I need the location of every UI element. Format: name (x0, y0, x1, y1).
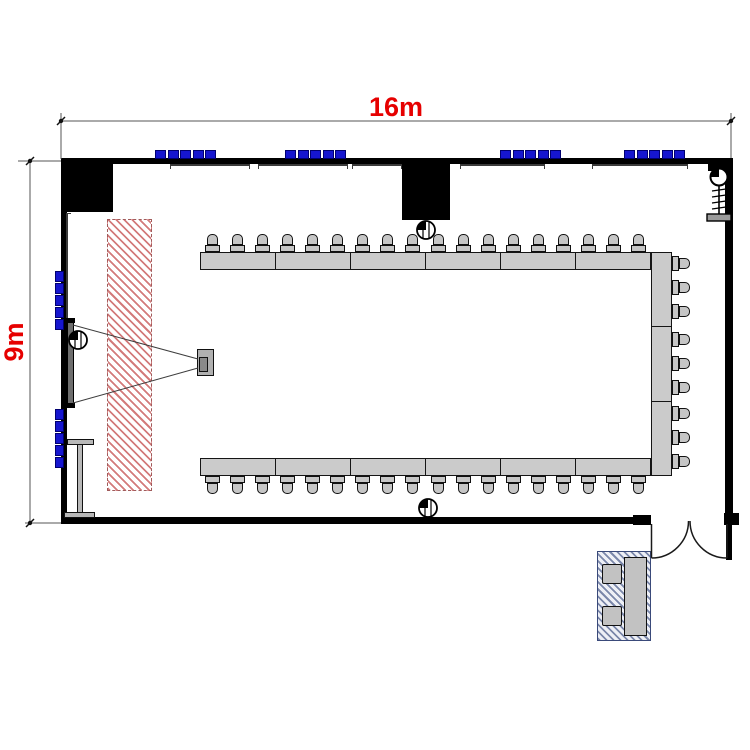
chair (672, 380, 690, 395)
light-cell (55, 409, 64, 420)
chair-back (483, 234, 494, 245)
chair-back (207, 234, 218, 245)
chair-back (357, 483, 368, 494)
light-cell (205, 150, 216, 159)
chair (556, 476, 571, 494)
chair (205, 476, 220, 494)
chair (405, 234, 420, 252)
chair-back (257, 483, 268, 494)
chair-seat (631, 476, 646, 483)
chair-seat (280, 476, 295, 483)
light-cell (662, 150, 673, 159)
table-segment (501, 459, 576, 475)
light-cell (55, 445, 64, 456)
light-cell (55, 283, 64, 294)
chair-back (679, 382, 690, 393)
light-cell (624, 150, 635, 159)
chair-back (583, 234, 594, 245)
chair-seat (672, 356, 679, 371)
light-cell (525, 150, 536, 159)
chair (481, 234, 496, 252)
chair-seat (405, 476, 420, 483)
table-column-right (651, 252, 672, 476)
light-cell (335, 150, 346, 159)
table-row-top (200, 252, 651, 270)
table-segment (201, 459, 276, 475)
chair-seat (506, 245, 521, 252)
wall-rail-top (258, 164, 348, 169)
chair-seat (431, 245, 446, 252)
chair-back (533, 234, 544, 245)
light-cell (55, 421, 64, 432)
chair-back (357, 234, 368, 245)
table-segment (576, 459, 650, 475)
chair-back (332, 483, 343, 494)
projection-screen-cap-top (65, 318, 75, 323)
reception-chair-1 (602, 564, 622, 584)
light-cell (310, 150, 321, 159)
table-segment (426, 253, 501, 269)
chair-back (332, 234, 343, 245)
chair-seat (355, 476, 370, 483)
chair (355, 476, 370, 494)
light-cell (649, 150, 660, 159)
table-segment (426, 459, 501, 475)
ceiling-speaker-bottom-icon (419, 499, 437, 517)
chair (380, 234, 395, 252)
chair-back (679, 432, 690, 443)
chair-seat (255, 476, 270, 483)
chair-seat (556, 245, 571, 252)
wall-rail-left (66, 213, 71, 321)
chair (672, 332, 690, 347)
chair-seat (255, 245, 270, 252)
light-cell (285, 150, 296, 159)
wall-rail-top (460, 164, 545, 169)
corner-block-top-right (708, 158, 733, 171)
chair-back (282, 483, 293, 494)
light-strip-left (55, 271, 64, 330)
light-cell (637, 150, 648, 159)
chair-back (307, 234, 318, 245)
chair-seat (230, 245, 245, 252)
chair-seat (672, 406, 679, 421)
chair (672, 256, 690, 271)
chair (672, 356, 690, 371)
table-segment (276, 459, 351, 475)
chair (672, 304, 690, 319)
chair-seat (631, 245, 646, 252)
chair (330, 476, 345, 494)
chair-seat (672, 454, 679, 469)
chair-seat (606, 476, 621, 483)
chair-seat (672, 256, 679, 271)
chair-back (508, 483, 519, 494)
chair (531, 234, 546, 252)
chair (305, 476, 320, 494)
chair (280, 476, 295, 494)
chair (481, 476, 496, 494)
table-row-bottom (200, 458, 651, 476)
chair (606, 234, 621, 252)
chair (672, 280, 690, 295)
screen-clearance-zone (107, 219, 152, 491)
chair-back (483, 483, 494, 494)
light-cell (55, 307, 64, 318)
light-cell (55, 271, 64, 282)
chair-seat (305, 476, 320, 483)
chair (581, 234, 596, 252)
chair (581, 476, 596, 494)
table-segment (351, 459, 426, 475)
chair-back (533, 483, 544, 494)
table-segment (501, 253, 576, 269)
chair (255, 476, 270, 494)
height-dimension-label: 9m (0, 312, 28, 372)
chair (280, 234, 295, 252)
chair (380, 476, 395, 494)
chair-seat (355, 245, 370, 252)
chair (506, 476, 521, 494)
chair (205, 234, 220, 252)
light-cell (55, 457, 64, 468)
light-cell (193, 150, 204, 159)
pillar-top-left (62, 162, 113, 212)
chair-seat (405, 245, 420, 252)
chair-seat (672, 304, 679, 319)
chair-seat (481, 476, 496, 483)
chair (506, 234, 521, 252)
chair (606, 476, 621, 494)
chair-seat (380, 476, 395, 483)
floor-plan: 16m 9m (0, 0, 750, 750)
chair-seat (581, 245, 596, 252)
whiteboard-stem (77, 444, 83, 513)
chair-back (407, 234, 418, 245)
whiteboard-bottom-bar (64, 512, 95, 518)
chair (456, 476, 471, 494)
chair (672, 406, 690, 421)
light-cell (55, 319, 64, 330)
light-cell (538, 150, 549, 159)
width-dimension-label: 16m (340, 93, 452, 121)
reception-chair-2 (602, 606, 622, 626)
chair-seat (456, 476, 471, 483)
chair-back (679, 408, 690, 419)
light-cell (168, 150, 179, 159)
chair-back (307, 483, 318, 494)
chair-back (433, 234, 444, 245)
chair (672, 430, 690, 445)
chair-back (433, 483, 444, 494)
chair-seat (506, 476, 521, 483)
chair-back (382, 234, 393, 245)
chair-seat (531, 476, 546, 483)
chair-back (633, 234, 644, 245)
chair-back (608, 483, 619, 494)
chair-back (508, 234, 519, 245)
light-strip-top (155, 150, 216, 159)
chair-seat (581, 476, 596, 483)
chair (456, 234, 471, 252)
chair-seat (305, 245, 320, 252)
chair (556, 234, 571, 252)
double-door (652, 521, 728, 558)
light-strip-top (624, 150, 685, 159)
chair-back (558, 483, 569, 494)
light-cell (55, 295, 64, 306)
light-cell (500, 150, 511, 159)
chair-back (232, 234, 243, 245)
table-segment (576, 253, 650, 269)
chair-back (679, 282, 690, 293)
table-segment (652, 327, 671, 401)
wall-rail-top (352, 164, 402, 169)
chair-seat (431, 476, 446, 483)
chair-back (679, 334, 690, 345)
chair (631, 234, 646, 252)
chair-seat (456, 245, 471, 252)
chair-seat (205, 476, 220, 483)
chair (672, 454, 690, 469)
chair (405, 476, 420, 494)
reception-desk (624, 557, 647, 636)
chair (431, 234, 446, 252)
table-segment (201, 253, 276, 269)
chair-back (207, 483, 218, 494)
chair-back (407, 483, 418, 494)
light-cell (155, 150, 166, 159)
projector-lens (199, 357, 208, 372)
chair-seat (230, 476, 245, 483)
chair-seat (672, 280, 679, 295)
chair (230, 476, 245, 494)
light-cell (298, 150, 309, 159)
wall-right (725, 158, 733, 515)
chair-seat (672, 380, 679, 395)
wall-rail-top (170, 164, 250, 169)
wall-bottom (61, 517, 651, 524)
chair (531, 476, 546, 494)
light-strip-top (285, 150, 346, 159)
chair-seat (481, 245, 496, 252)
table-segment (276, 253, 351, 269)
chair-back (232, 483, 243, 494)
chair-back (633, 483, 644, 494)
chair-back (282, 234, 293, 245)
light-strip-top (500, 150, 561, 159)
door-jamb-right (724, 513, 739, 525)
chair (255, 234, 270, 252)
chair (355, 234, 370, 252)
chair-back (679, 306, 690, 317)
table-segment (652, 402, 671, 475)
chair-seat (672, 430, 679, 445)
chair-seat (280, 245, 295, 252)
chair-back (558, 234, 569, 245)
door-jamb-left (633, 515, 651, 525)
chair-back (257, 234, 268, 245)
projection-screen-cap-bottom (65, 403, 75, 408)
chair (305, 234, 320, 252)
chair-seat (531, 245, 546, 252)
light-cell (323, 150, 334, 159)
table-segment (652, 253, 671, 327)
projection-screen (67, 321, 74, 407)
chair (230, 234, 245, 252)
chair-back (679, 456, 690, 467)
chair (330, 234, 345, 252)
pillar-top-center (402, 162, 450, 220)
light-cell (674, 150, 685, 159)
light-cell (180, 150, 191, 159)
chair-back (583, 483, 594, 494)
light-strip-left (55, 409, 64, 468)
chair-seat (606, 245, 621, 252)
light-cell (513, 150, 524, 159)
chair-seat (672, 332, 679, 347)
chair-seat (330, 476, 345, 483)
light-cell (550, 150, 561, 159)
light-cell (55, 433, 64, 444)
chair-back (458, 234, 469, 245)
chair (631, 476, 646, 494)
chair-back (608, 234, 619, 245)
table-segment (351, 253, 426, 269)
chair-seat (330, 245, 345, 252)
wall-rail-top (592, 164, 688, 169)
chair-back (458, 483, 469, 494)
chair-seat (380, 245, 395, 252)
chair-back (382, 483, 393, 494)
chair-back (679, 358, 690, 369)
chair (431, 476, 446, 494)
chair-back (679, 258, 690, 269)
chair-seat (205, 245, 220, 252)
chair-seat (556, 476, 571, 483)
